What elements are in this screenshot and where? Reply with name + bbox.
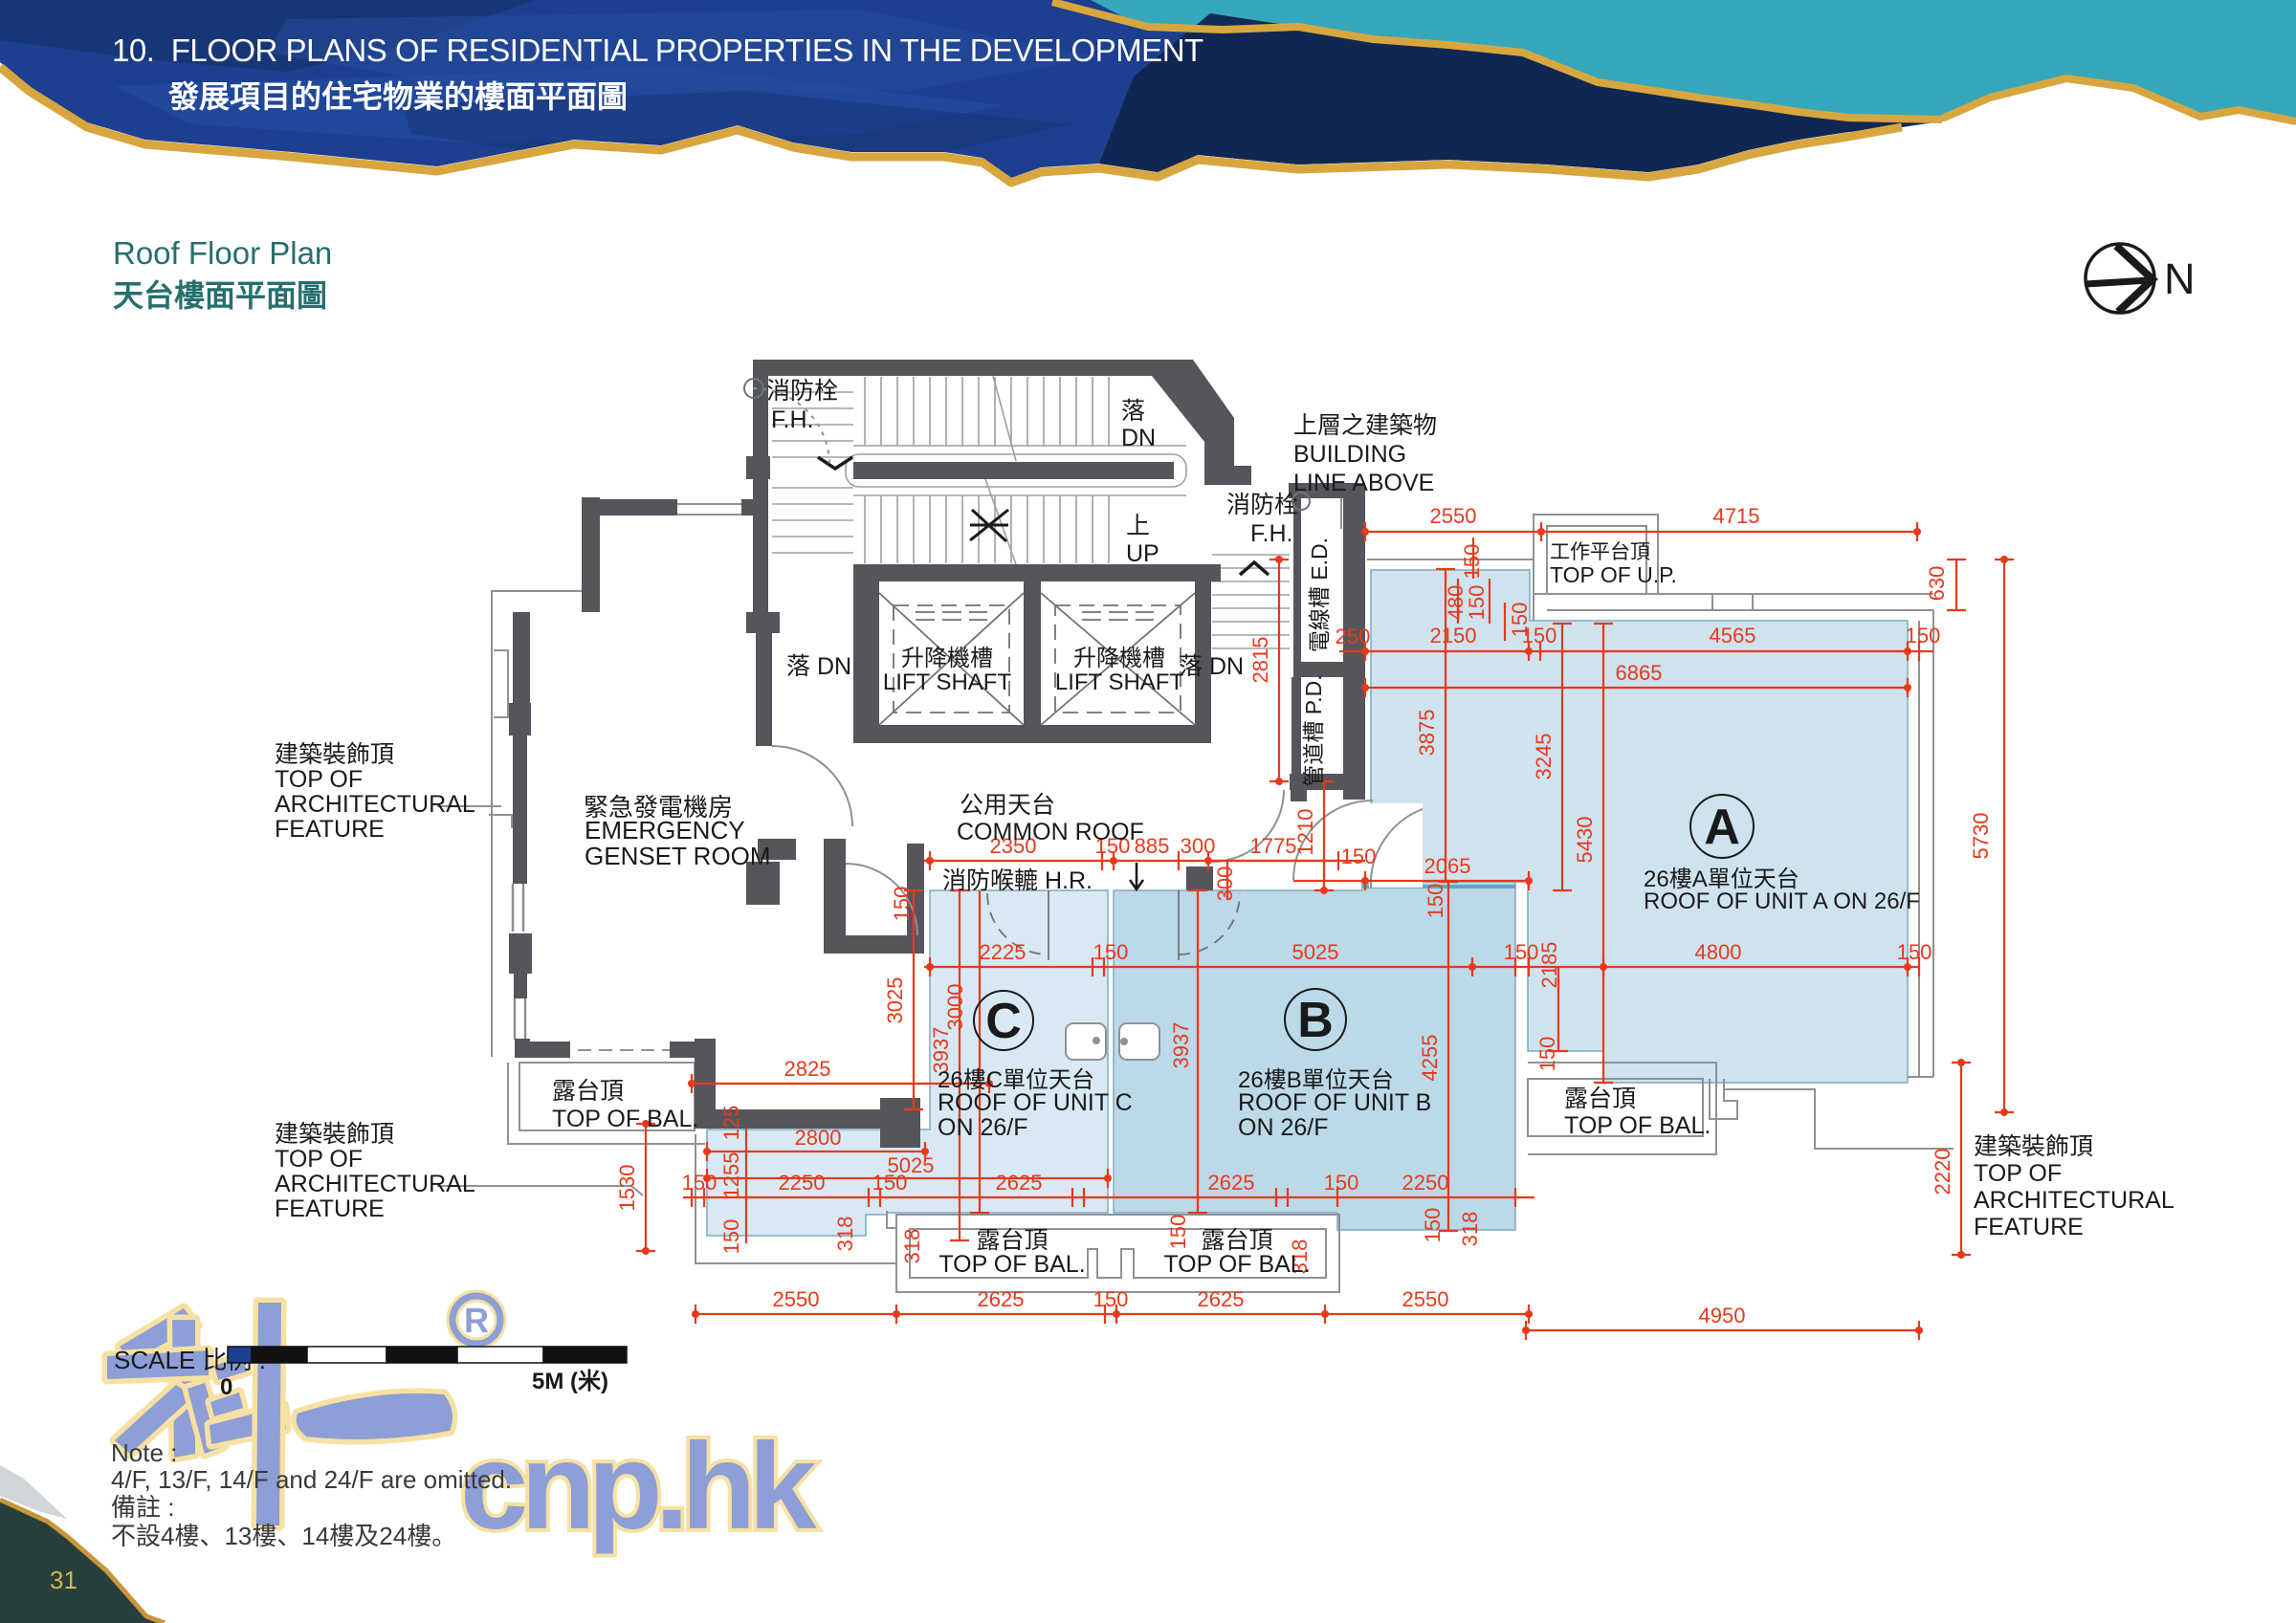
svg-text:備註 :: 備註 :: [111, 1493, 174, 1522]
svg-text:150: 150: [1424, 884, 1447, 919]
svg-text:上: 上: [1126, 513, 1150, 539]
svg-text:2815: 2815: [1248, 637, 1272, 684]
svg-text:5025: 5025: [1292, 940, 1339, 964]
svg-text:150: 150: [1324, 1171, 1359, 1195]
svg-text:150: 150: [1421, 1208, 1445, 1243]
svg-text:318: 318: [900, 1229, 924, 1264]
svg-text:cnp.hk: cnp.hk: [460, 1418, 817, 1555]
svg-text:3245: 3245: [1532, 734, 1556, 780]
svg-text:消防栓: 消防栓: [766, 378, 838, 405]
svg-text:3875: 3875: [1415, 710, 1439, 757]
svg-text:天台樓面平面圖: 天台樓面平面圖: [113, 278, 327, 313]
svg-text:GENSET ROOM: GENSET ROOM: [585, 842, 771, 870]
svg-text:2550: 2550: [773, 1287, 820, 1311]
svg-text:ROOF OF UNIT A ON 26/F: ROOF OF UNIT A ON 26/F: [1644, 888, 1920, 914]
svg-text:TOP OF: TOP OF: [275, 1146, 363, 1173]
svg-text:31: 31: [50, 1566, 77, 1594]
svg-text:150: 150: [1504, 940, 1539, 964]
svg-text:1775: 1775: [1250, 834, 1297, 858]
svg-text:工作平台頂: 工作平台頂: [1550, 541, 1650, 563]
svg-text:TOP OF BAL.: TOP OF BAL.: [938, 1251, 1085, 1278]
svg-text:ON 26/F: ON 26/F: [938, 1114, 1027, 1141]
svg-text:建築裝飾頂: 建築裝飾頂: [275, 741, 394, 768]
svg-text:UP: UP: [1126, 540, 1159, 567]
svg-text:TOP OF: TOP OF: [1974, 1160, 2062, 1187]
svg-text:FEATURE: FEATURE: [1974, 1214, 2084, 1240]
svg-text:3937: 3937: [1169, 1022, 1193, 1069]
svg-text:消防喉轆 H.R.: 消防喉轆 H.R.: [942, 867, 1093, 894]
svg-text:F.H.: F.H.: [771, 406, 813, 433]
svg-text:6865: 6865: [1616, 661, 1663, 685]
svg-text:露台頂: 露台頂: [1201, 1227, 1272, 1254]
svg-text:露台頂: 露台頂: [552, 1078, 624, 1105]
svg-text:150: 150: [1460, 544, 1484, 580]
svg-text:4255: 4255: [1418, 1035, 1442, 1082]
svg-text:LIFT SHAFT: LIFT SHAFT: [1055, 669, 1184, 695]
svg-text:150: 150: [1535, 1037, 1559, 1072]
svg-text:B: B: [1297, 993, 1334, 1048]
svg-text:升降機槽: 升降機槽: [1073, 646, 1165, 671]
svg-text:C: C: [985, 994, 1022, 1049]
svg-text:Note :: Note :: [111, 1438, 177, 1467]
svg-text:2220: 2220: [1931, 1149, 1954, 1195]
svg-text:3000: 3000: [943, 984, 967, 1031]
svg-text:150: 150: [1093, 940, 1129, 964]
svg-text:5430: 5430: [1573, 817, 1597, 864]
svg-text:ON 26/F: ON 26/F: [1238, 1114, 1328, 1141]
svg-text:建築裝飾頂: 建築裝飾頂: [1974, 1133, 2093, 1160]
svg-text:落: 落: [1121, 398, 1145, 425]
svg-text:1210: 1210: [1293, 809, 1317, 856]
svg-text:2250: 2250: [779, 1171, 826, 1195]
svg-text:F.H.: F.H.: [1250, 520, 1292, 547]
svg-text:150: 150: [872, 1171, 908, 1195]
svg-text:2225: 2225: [980, 940, 1027, 964]
svg-text:10. FLOOR PLANS OF RESIDENTIA: 10. FLOOR PLANS OF RESIDENTIAL PROPERTIE…: [112, 33, 1203, 68]
svg-text:4/F, 13/F, 14/F and 24/F are o: 4/F, 13/F, 14/F and 24/F are omitted.: [111, 1465, 512, 1494]
svg-text:建築裝飾頂: 建築裝飾頂: [275, 1121, 394, 1148]
svg-text:150: 150: [1508, 603, 1532, 638]
svg-text:250: 250: [1336, 625, 1371, 648]
svg-text:ARCHITECTURAL: ARCHITECTURAL: [275, 1171, 475, 1197]
svg-text:2150: 2150: [1430, 624, 1477, 647]
svg-text:露台頂: 露台頂: [1564, 1086, 1636, 1112]
svg-text:150: 150: [890, 887, 914, 922]
svg-text:150: 150: [1341, 844, 1377, 868]
svg-text:0: 0: [220, 1374, 232, 1400]
svg-text:TOP OF BAL.: TOP OF BAL.: [552, 1106, 698, 1132]
svg-text:ROOF OF UNIT B: ROOF OF UNIT B: [1238, 1089, 1431, 1116]
svg-text:2625: 2625: [978, 1287, 1025, 1311]
svg-text:Roof Floor Plan: Roof Floor Plan: [113, 235, 332, 271]
svg-text:1255: 1255: [719, 1152, 743, 1199]
svg-text:2800: 2800: [795, 1126, 842, 1150]
svg-text:5M (米): 5M (米): [532, 1369, 608, 1394]
svg-text:2625: 2625: [996, 1171, 1043, 1195]
svg-text:露台頂: 露台頂: [976, 1227, 1048, 1254]
svg-text:LIFT SHAFT: LIFT SHAFT: [883, 669, 1012, 695]
svg-text:2550: 2550: [1402, 1287, 1449, 1311]
svg-text:630: 630: [1925, 566, 1949, 602]
svg-text:150: 150: [1897, 940, 1932, 964]
svg-text:2250: 2250: [1402, 1171, 1449, 1195]
svg-text:5730: 5730: [1969, 813, 1993, 860]
svg-text:N: N: [2164, 254, 2196, 303]
svg-text:電線槽 E.D.: 電線槽 E.D.: [1307, 537, 1332, 652]
svg-text:落 DN: 落 DN: [1179, 653, 1244, 680]
svg-text:TOP OF BAL.: TOP OF BAL.: [1163, 1251, 1310, 1278]
svg-text:ROOF OF UNIT C: ROOF OF UNIT C: [938, 1089, 1133, 1116]
svg-text:150: 150: [1166, 1215, 1190, 1250]
svg-text:2185: 2185: [1537, 942, 1561, 989]
svg-text:2625: 2625: [1208, 1171, 1255, 1195]
svg-text:管道槽 P.D.: 管道槽 P.D.: [1301, 674, 1326, 786]
svg-text:4800: 4800: [1695, 940, 1742, 964]
svg-text:BUILDING: BUILDING: [1293, 441, 1406, 468]
svg-text:2065: 2065: [1424, 854, 1471, 878]
svg-text:ARCHITECTURAL: ARCHITECTURAL: [1974, 1187, 2175, 1214]
svg-text:升降機槽: 升降機槽: [901, 646, 993, 671]
svg-text:2625: 2625: [1198, 1287, 1245, 1311]
svg-text:3025: 3025: [883, 977, 907, 1024]
svg-text:318: 318: [1458, 1212, 1482, 1247]
svg-text:A: A: [1704, 800, 1740, 855]
svg-text:1530: 1530: [615, 1165, 639, 1212]
svg-text:2550: 2550: [1430, 504, 1477, 528]
svg-text:FEATURE: FEATURE: [275, 1195, 385, 1222]
svg-text:2825: 2825: [784, 1057, 831, 1081]
svg-text:150: 150: [1465, 585, 1489, 621]
svg-text:TOP OF BAL.: TOP OF BAL.: [1564, 1112, 1711, 1139]
svg-text:150: 150: [719, 1219, 743, 1255]
svg-text:EMERGENCY: EMERGENCY: [585, 816, 745, 844]
svg-text:4715: 4715: [1713, 504, 1760, 528]
svg-text:LINE ABOVE: LINE ABOVE: [1293, 470, 1434, 496]
svg-text:DN: DN: [1121, 425, 1156, 451]
svg-text:ARCHITECTURAL: ARCHITECTURAL: [275, 791, 475, 818]
svg-text:發展項目的住宅物業的樓面平面圖: 發展項目的住宅物業的樓面平面圖: [167, 79, 628, 114]
svg-text:4950: 4950: [1699, 1304, 1746, 1327]
svg-text:TOP OF: TOP OF: [275, 766, 363, 793]
svg-text:TOP OF U.P.: TOP OF U.P.: [1550, 562, 1677, 587]
svg-text:150: 150: [1093, 1287, 1129, 1311]
svg-text:318: 318: [833, 1217, 857, 1252]
svg-text:125: 125: [719, 1106, 743, 1141]
svg-text:FEATURE: FEATURE: [275, 816, 385, 843]
svg-text:150: 150: [1906, 624, 1941, 647]
svg-text:不設4樓、13樓、14樓及24樓。: 不設4樓、13樓、14樓及24樓。: [111, 1522, 456, 1550]
svg-text:公用天台: 公用天台: [960, 792, 1055, 819]
svg-text:COMMON ROOF: COMMON ROOF: [957, 819, 1144, 845]
svg-text:R: R: [464, 1301, 489, 1340]
svg-text:150: 150: [682, 1171, 717, 1195]
svg-text:300: 300: [1181, 834, 1216, 858]
svg-text:4565: 4565: [1710, 624, 1756, 647]
svg-text:300: 300: [1213, 866, 1237, 902]
svg-text:落 DN: 落 DN: [786, 653, 851, 680]
svg-text:上層之建築物: 上層之建築物: [1293, 412, 1437, 439]
svg-text:消防栓: 消防栓: [1226, 492, 1298, 518]
